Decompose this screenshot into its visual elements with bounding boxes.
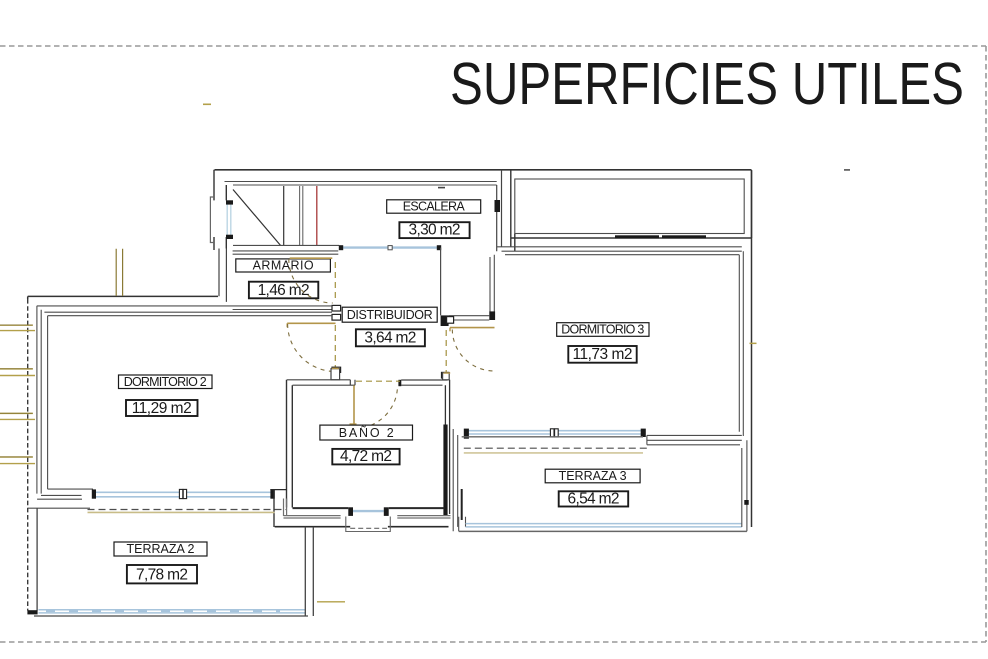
svg-text:DORMITORIO 3: DORMITORIO 3 [561,323,644,337]
svg-text:DISTRIBUIDOR: DISTRIBUIDOR [347,308,433,322]
svg-text:4,72 m2: 4,72 m2 [340,448,392,465]
svg-text:7,78 m2: 7,78 m2 [136,566,188,583]
svg-text:6,54 m2: 6,54 m2 [568,491,620,508]
svg-text:TERRAZA 2: TERRAZA 2 [127,542,195,556]
svg-text:ARMARIO: ARMARIO [253,259,314,273]
svg-text:DORMITORIO 2: DORMITORIO 2 [124,375,207,389]
svg-text:TERRAZA 3: TERRAZA 3 [559,469,627,483]
svg-text:SUPERFICIES UTILES: SUPERFICIES UTILES [450,51,964,117]
svg-text:3,30 m2: 3,30 m2 [409,222,461,239]
svg-text:3,64 m2: 3,64 m2 [364,330,416,347]
svg-text:11,73 m2: 11,73 m2 [573,346,633,363]
svg-text:11,29 m2: 11,29 m2 [132,400,192,417]
svg-text:ESCALERA: ESCALERA [403,200,466,214]
